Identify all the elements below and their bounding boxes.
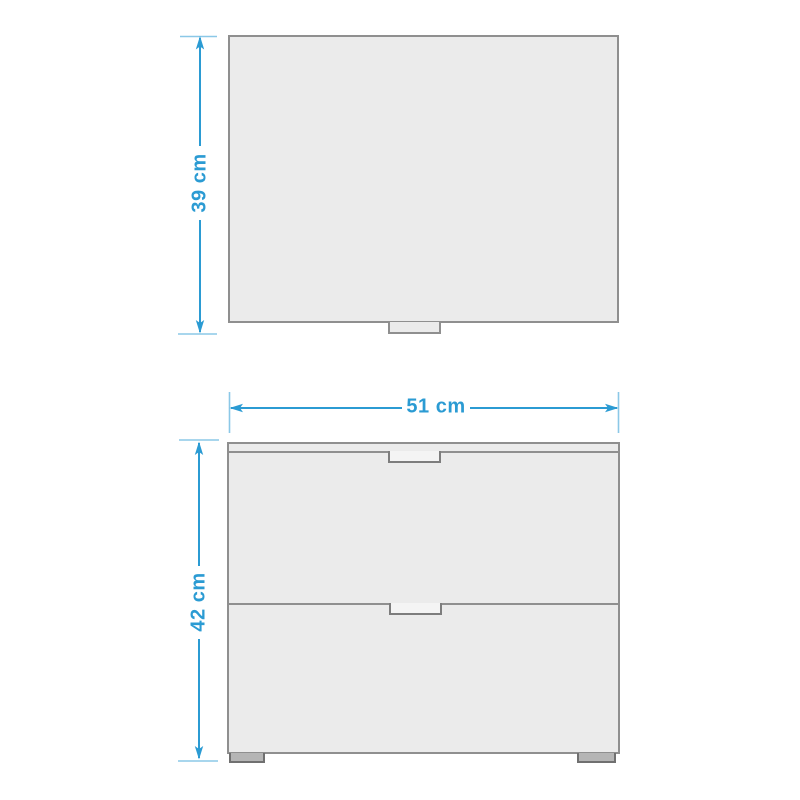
dimension-label-height: 42 cm [188,572,211,631]
drawer-bottom [229,605,618,752]
top-view-handle-tab [388,322,441,334]
dimension-label-depth: 39 cm [189,153,212,212]
drawer-bottom-handle [389,603,442,615]
dimension-label-width: 51 cm [406,396,465,419]
dimension-diagram: 39 cm 51 cm 42 cm [0,0,800,800]
arrowhead-down [196,320,204,334]
foot-right [577,753,616,763]
arrowhead-up [195,442,203,456]
foot-left [229,753,265,763]
front-view-panel [227,442,620,754]
drawer-top [229,453,618,605]
arrowhead-down [195,746,203,760]
arrowhead-up [196,36,204,50]
drawer-top-handle [388,451,441,463]
arrowhead-right [605,404,619,412]
top-view-panel [228,35,619,323]
arrowhead-left [230,404,244,412]
